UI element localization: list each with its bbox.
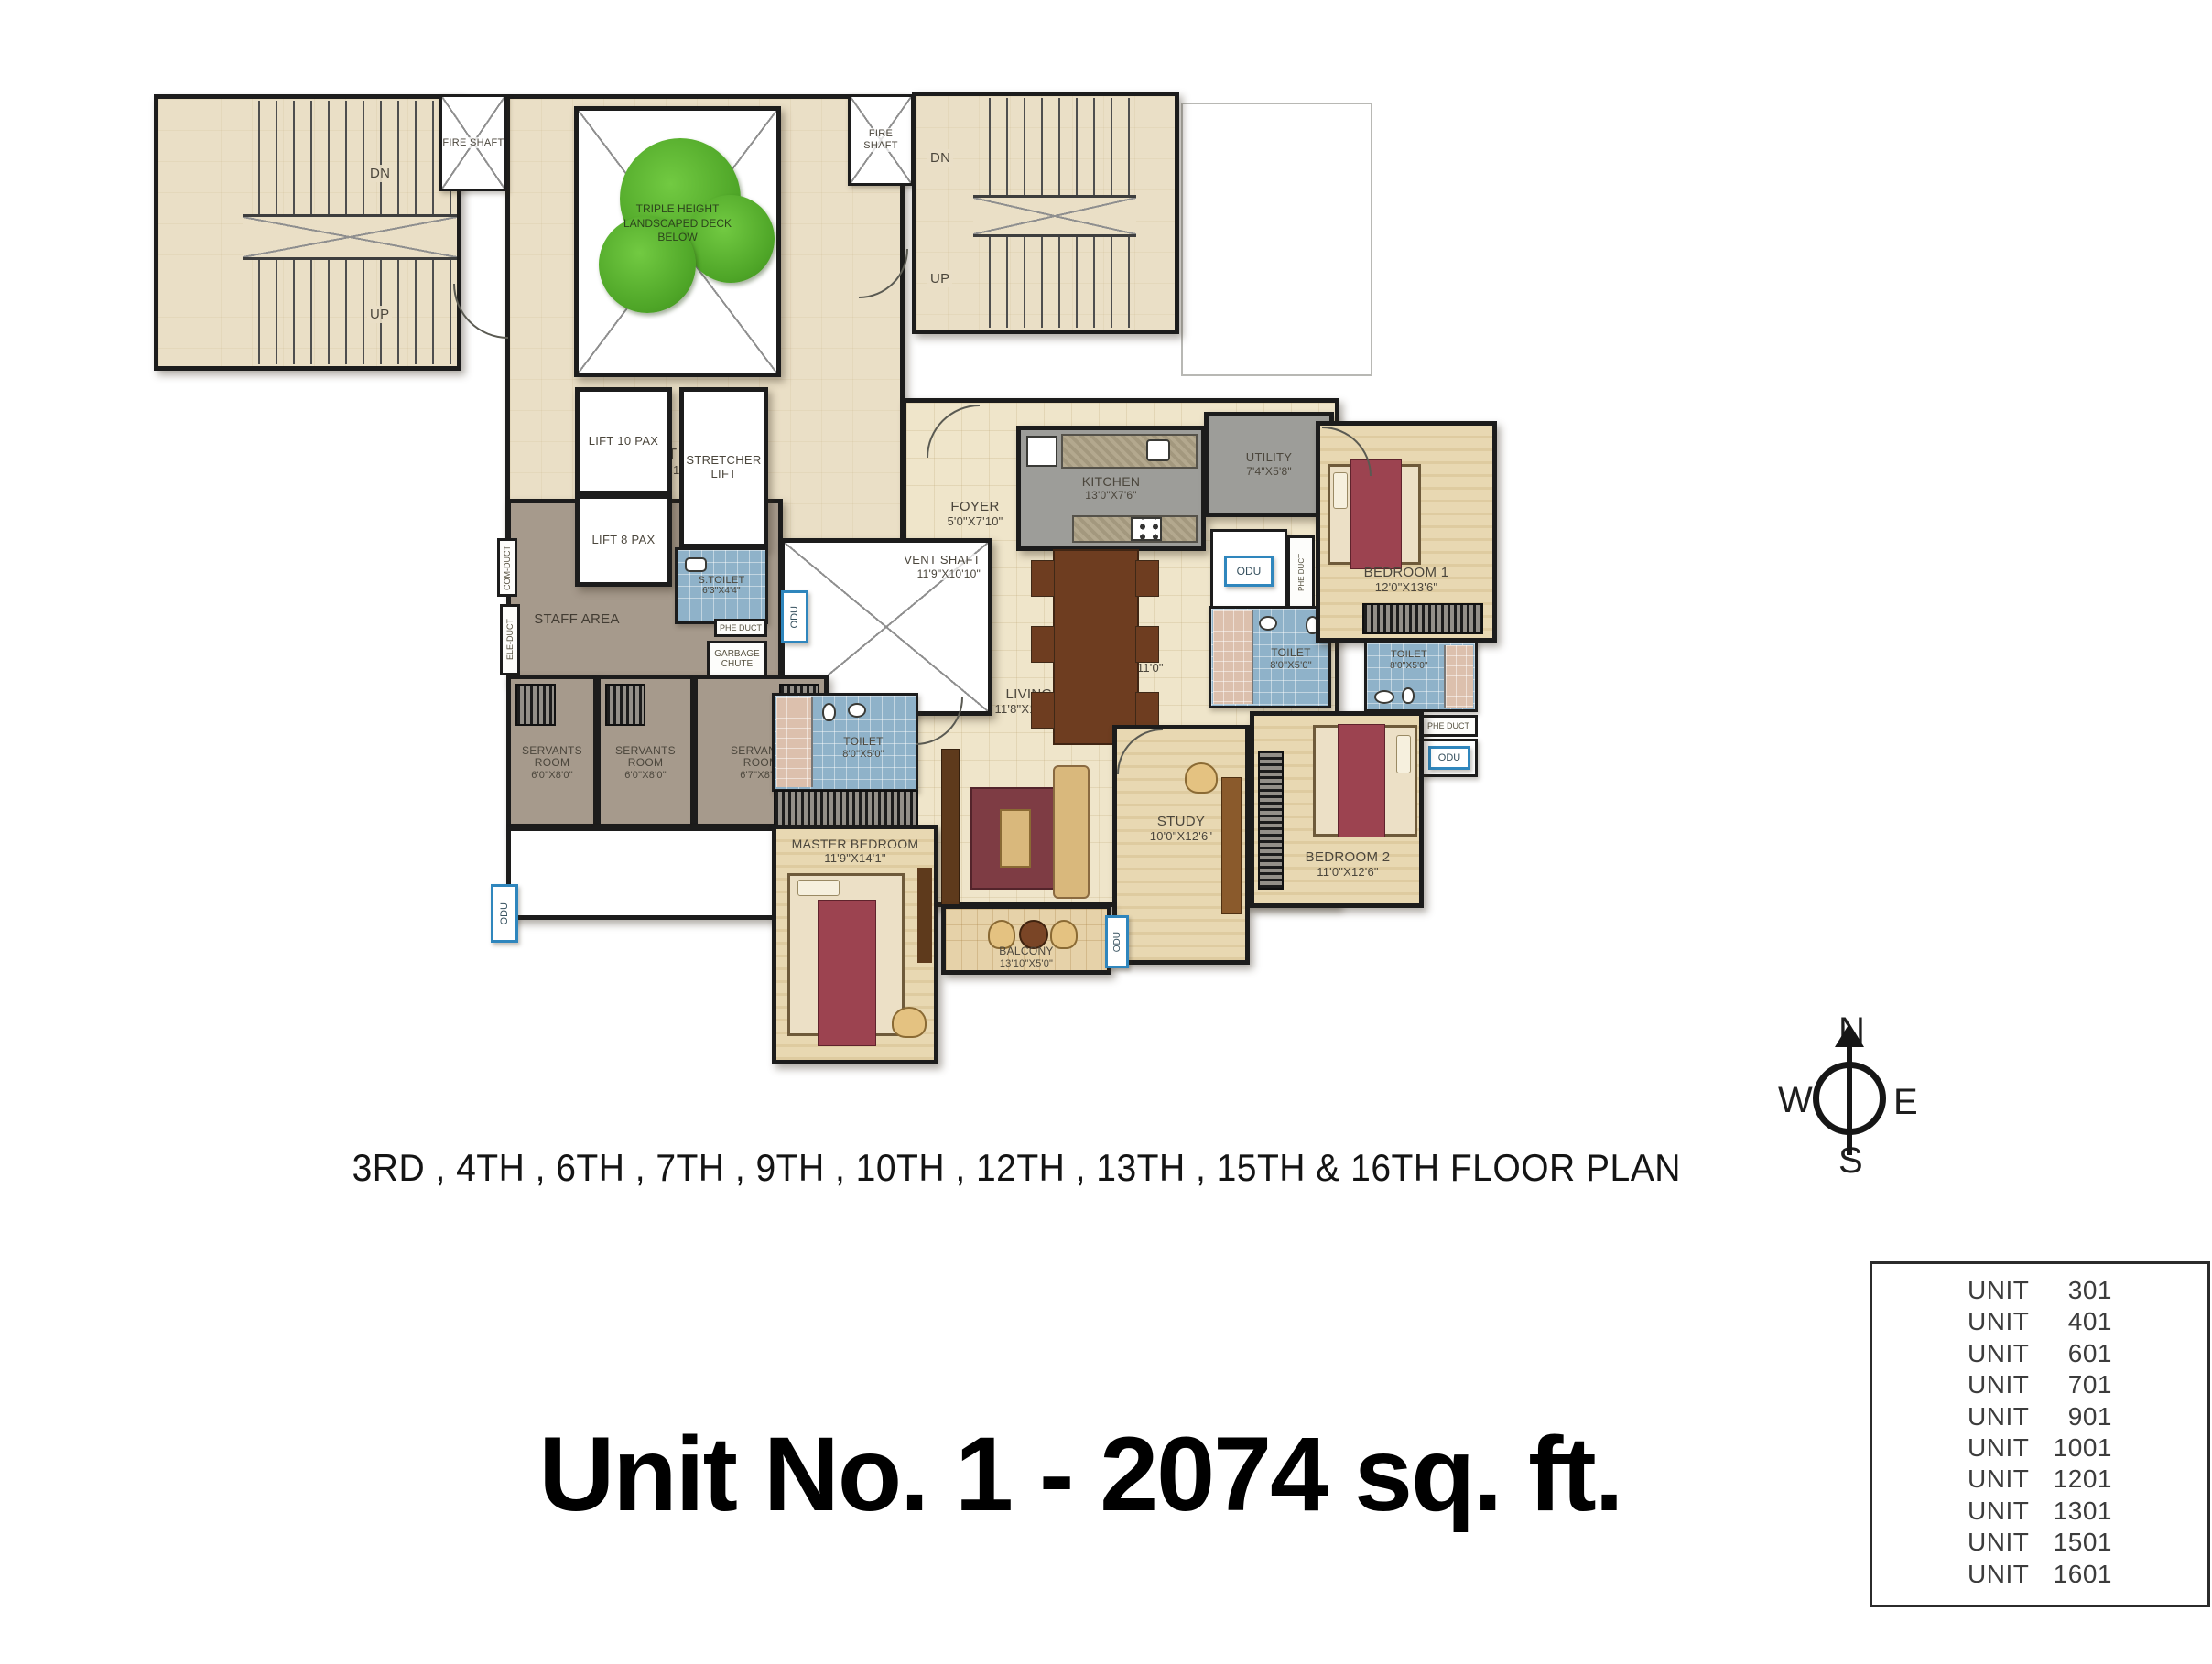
sofa bbox=[1053, 765, 1090, 899]
kitchen-counter bbox=[1061, 434, 1198, 469]
phe-duct: PHE DUCT bbox=[1287, 535, 1315, 609]
stair-up-label: UP bbox=[367, 306, 392, 323]
phe-duct: PHE DUCT bbox=[714, 619, 767, 637]
unit-table-row: UNIT1201 bbox=[1968, 1464, 2112, 1495]
terrace-outline bbox=[1181, 103, 1372, 376]
unit-title: Unit No. 1 - 2074 sq. ft. bbox=[357, 1414, 1804, 1535]
unit-table-row: UNIT301 bbox=[1968, 1275, 2112, 1306]
fire-shaft-left: FIRE SHAFT bbox=[439, 94, 507, 191]
odu-box: ODU bbox=[491, 884, 518, 943]
chair-icon bbox=[1031, 560, 1055, 597]
bedroom1-label: BEDROOM 1 12'0"X13'6" bbox=[1320, 565, 1492, 595]
staircase-right: DN UP bbox=[912, 92, 1179, 334]
com-duct: COM-DUCT bbox=[497, 538, 517, 597]
compass-arrowhead-icon bbox=[1835, 1023, 1864, 1047]
chair-icon bbox=[1135, 626, 1159, 663]
stove-icon bbox=[1131, 517, 1162, 541]
wardrobe-hatch bbox=[774, 790, 918, 827]
unit-table-row: UNIT401 bbox=[1968, 1306, 2112, 1337]
wc-icon bbox=[822, 703, 836, 721]
room-bedroom-2: BEDROOM 2 11'0"X12'6" bbox=[1250, 711, 1424, 908]
blanket bbox=[818, 900, 876, 1046]
odu-room: ODU bbox=[1210, 529, 1287, 613]
unit-table-row: UNIT701 bbox=[1968, 1369, 2112, 1400]
blanket bbox=[1338, 724, 1385, 837]
fire-shaft-right: FIRE SHAFT bbox=[848, 94, 914, 186]
toilet-label: TOILET 8'0"X5'0" bbox=[1253, 647, 1328, 672]
vent-shaft-label: VENT SHAFT 11'9"X10'10" bbox=[904, 554, 981, 580]
ele-duct: ELE-DUCT bbox=[500, 604, 520, 675]
bedroom2-label: BEDROOM 2 11'0"X12'6" bbox=[1276, 849, 1419, 880]
compass-needle bbox=[1847, 1038, 1852, 1155]
odu-box: ODU bbox=[1105, 915, 1129, 968]
odu-box: ODU bbox=[781, 590, 808, 643]
pillow-icon bbox=[1396, 735, 1411, 773]
unit-table-row: UNIT1601 bbox=[1968, 1559, 2112, 1590]
bed-icon bbox=[787, 873, 905, 1036]
room-balcony: BALCONY 13'10"X5'0" bbox=[941, 904, 1111, 975]
room-lift-8: LIFT 8 PAX bbox=[575, 494, 672, 587]
coffee-table bbox=[1000, 809, 1031, 868]
door-arc bbox=[453, 284, 508, 339]
room-utility: UTILITY 7'4"X5'8" bbox=[1204, 412, 1334, 517]
room-servants-1: SERVANTS ROOM 6'0"X8'0" bbox=[506, 675, 598, 828]
stair-dn-label: DN bbox=[927, 149, 953, 167]
staircase-left: DN UP bbox=[154, 94, 461, 371]
floor-plan-page: LIFT LOBBY 24'11"x 8'0" DN UP FIRE SHAFT… bbox=[0, 0, 2212, 1664]
bed-icon bbox=[1328, 464, 1421, 565]
chair-icon bbox=[1031, 692, 1055, 729]
unit-table: UNIT301 UNIT401 UNIT601 UNIT701 UNIT901 … bbox=[1870, 1261, 2210, 1607]
chair-icon bbox=[1135, 692, 1159, 729]
bed-icon bbox=[1313, 725, 1417, 837]
pillow-icon bbox=[797, 880, 840, 896]
dining-table bbox=[1053, 549, 1139, 745]
stair-up-label: UP bbox=[927, 270, 952, 287]
toilet-label: TOILET 8'0"X5'0" bbox=[811, 736, 916, 761]
unit-table-row: UNIT1301 bbox=[1968, 1496, 2112, 1527]
phe-duct: PHE DUCT bbox=[1419, 715, 1478, 737]
odu-room: ODU bbox=[1421, 739, 1478, 777]
desk-chair-icon bbox=[1185, 762, 1218, 794]
living-rug bbox=[970, 787, 1058, 890]
chair-icon bbox=[1031, 626, 1055, 663]
armchair-icon bbox=[892, 1007, 927, 1038]
wardrobe-hatch bbox=[605, 684, 645, 726]
room-servants-2: SERVANTS ROOM 6'0"X8'0" bbox=[596, 675, 695, 828]
fridge-icon bbox=[1026, 436, 1057, 467]
pillow-icon bbox=[1333, 472, 1348, 509]
unit-table-row: UNIT601 bbox=[1968, 1338, 2112, 1369]
blanket bbox=[1350, 459, 1402, 569]
fire-shaft-left-label: FIRE SHAFT bbox=[442, 137, 504, 149]
deck-label: TRIPLE HEIGHT LANDSCAPED DECK BELOW bbox=[615, 202, 740, 245]
chair-icon bbox=[1135, 560, 1159, 597]
shower-area bbox=[1213, 610, 1253, 704]
sink-icon bbox=[685, 557, 707, 572]
odu-box: ODU bbox=[1428, 746, 1470, 770]
garbage-chute: GARBAGE CHUTE bbox=[707, 641, 767, 677]
kitchen-label: KITCHEN 13'0"X7'6" bbox=[1021, 474, 1201, 502]
unit-table-row: UNIT1001 bbox=[1968, 1432, 2112, 1464]
wardrobe-hatch bbox=[1362, 603, 1483, 634]
room-toilet-common: TOILET 8'0"X5'0" bbox=[1209, 606, 1331, 708]
compass-e: E bbox=[1893, 1082, 1918, 1123]
unit-table-row: UNIT901 bbox=[1968, 1401, 2112, 1432]
room-toilet-master: TOILET 8'0"X5'0" bbox=[772, 693, 918, 792]
stair-landing bbox=[973, 195, 1136, 237]
dresser bbox=[917, 868, 932, 963]
toilet-label: TOILET 8'0"X5'0" bbox=[1367, 649, 1451, 672]
room-lift-10: LIFT 10 PAX bbox=[575, 387, 672, 495]
shower-area bbox=[776, 697, 813, 787]
desk bbox=[1221, 777, 1242, 914]
fire-shaft-right-label: FIRE SHAFT bbox=[851, 128, 911, 151]
compass-rose: N W E S bbox=[1758, 996, 1941, 1197]
kitchen-sink-icon bbox=[1146, 439, 1170, 461]
sink-icon bbox=[1259, 616, 1277, 631]
room-kitchen: KITCHEN 13'0"X7'6" bbox=[1016, 426, 1206, 551]
sink-icon bbox=[1374, 690, 1394, 704]
room-s-toilet: S.TOILET 6'3"X4'4" bbox=[675, 547, 768, 624]
compass-w: W bbox=[1778, 1080, 1813, 1121]
unit-table-row: UNIT1501 bbox=[1968, 1527, 2112, 1558]
stair-landing bbox=[243, 214, 457, 260]
sink-icon bbox=[848, 703, 866, 718]
room-master-bedroom: MASTER BEDROOM 11'9"X14'1" bbox=[772, 825, 938, 1064]
wc-icon bbox=[1402, 687, 1415, 704]
room-toilet-bedroom1: TOILET 8'0"X5'0" bbox=[1364, 641, 1478, 712]
odu-box: ODU bbox=[1224, 556, 1274, 587]
staff-area-label: STAFF AREA bbox=[518, 611, 635, 627]
wardrobe-hatch bbox=[515, 684, 556, 726]
landscaped-deck: TRIPLE HEIGHT LANDSCAPED DECK BELOW bbox=[574, 106, 781, 377]
balcony-label: BALCONY 13'10"X5'0" bbox=[946, 945, 1107, 970]
master-bedroom-label: MASTER BEDROOM 11'9"X14'1" bbox=[776, 837, 934, 866]
stair-dn-label: DN bbox=[367, 165, 393, 182]
foyer-label: FOYER 5'0"X7'10" bbox=[920, 499, 1030, 529]
floor-plan-caption: 3RD , 4TH , 6TH , 7TH , 9TH , 10TH , 12T… bbox=[352, 1146, 1681, 1190]
room-stretcher-lift: STRETCHER LIFT bbox=[679, 387, 768, 548]
tv-unit bbox=[941, 749, 960, 920]
